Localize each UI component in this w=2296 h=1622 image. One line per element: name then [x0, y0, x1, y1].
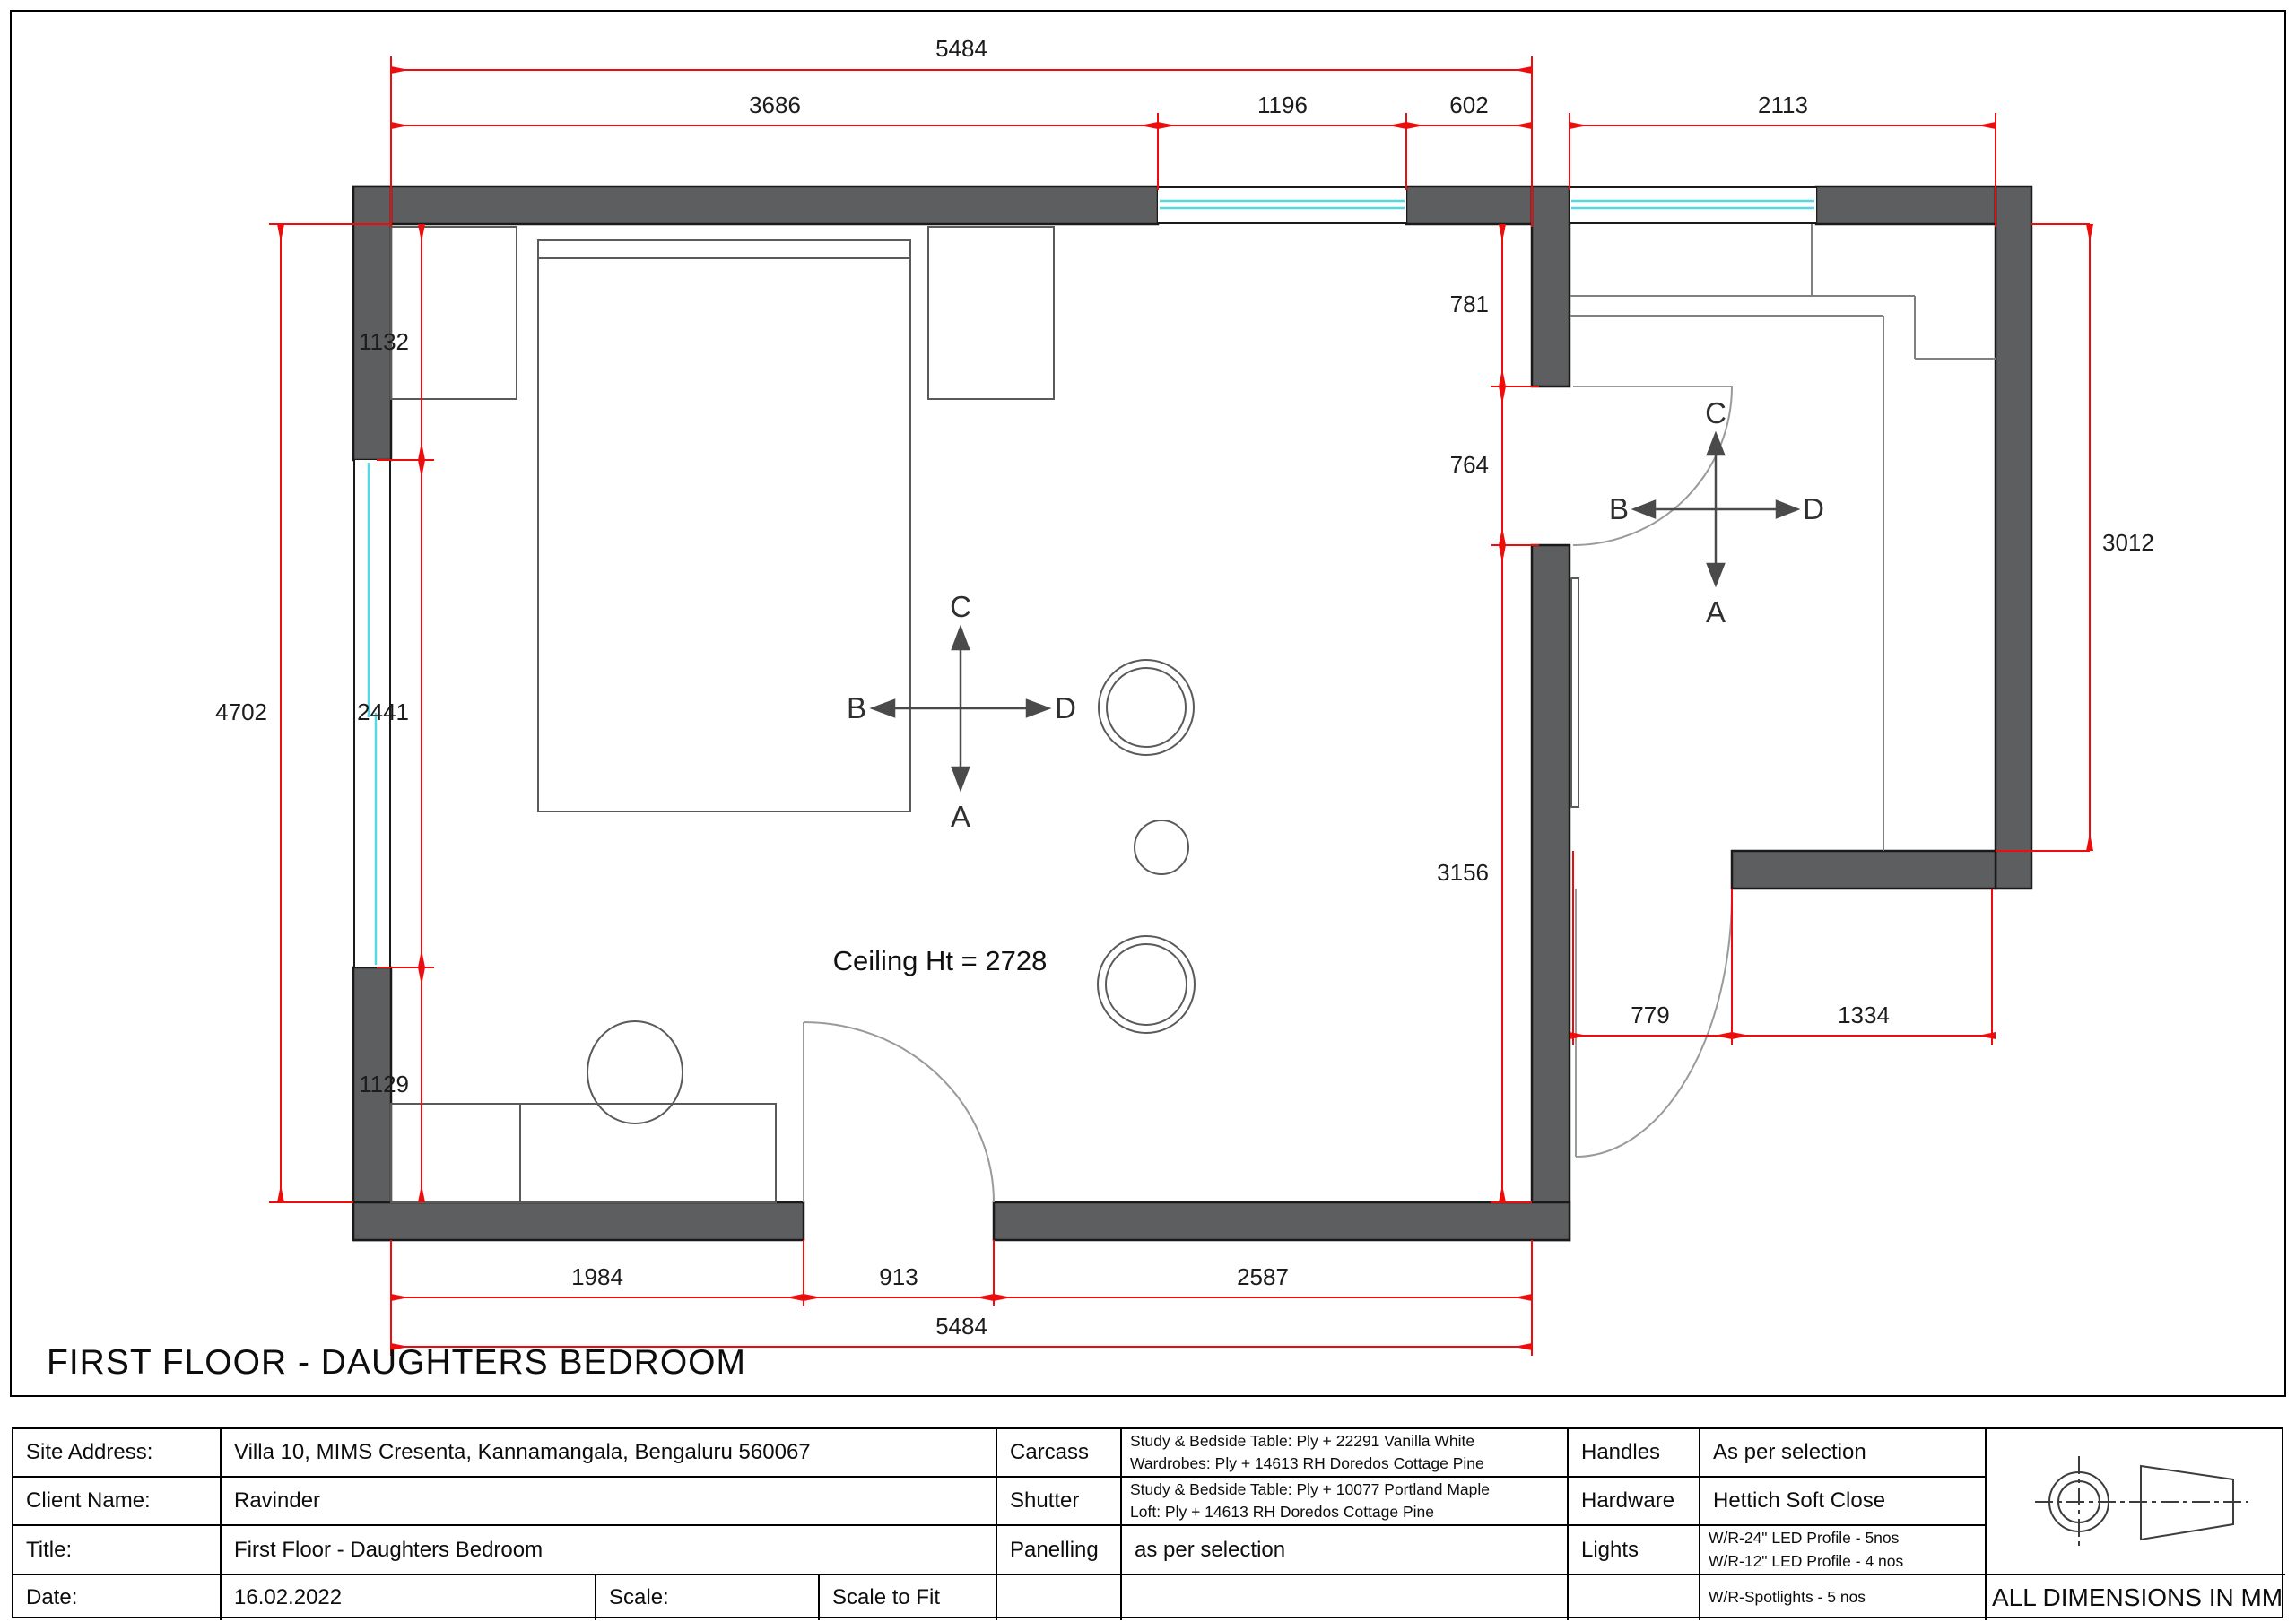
study-chair: [587, 1021, 683, 1123]
compass-closet: C A B D: [1609, 396, 1824, 629]
wall-left-lower: [353, 967, 391, 1240]
lights-label: Lights: [1569, 1526, 1700, 1575]
lights-value: W/R-24" LED Profile - 5nos W/R-12" LED P…: [1700, 1526, 1987, 1575]
window-top-closet: [1570, 186, 1816, 224]
compass-label-c: C: [950, 590, 971, 623]
wall-mirror: [1571, 578, 1578, 807]
compass-arrow-left-icon: [873, 700, 894, 716]
bedside-table-right: [928, 227, 1054, 399]
compass-label-c: C: [1705, 396, 1726, 429]
date-label: Date:: [13, 1575, 222, 1620]
dim-top-total: 5484: [935, 35, 987, 62]
dim-4702: 4702: [215, 698, 267, 725]
walls: [353, 186, 2031, 1240]
third-angle-projection-icon: [1987, 1429, 2285, 1574]
shutter-value: Study & Bedside Table: Ply + 10077 Portl…: [1122, 1478, 1569, 1526]
empty-cell: [997, 1575, 1122, 1620]
door-entry: [804, 1022, 994, 1202]
projection-symbol-cell: [1987, 1429, 2285, 1575]
doors: [804, 386, 1732, 1202]
compass-label-b: B: [1609, 492, 1629, 525]
client-value: Ravinder: [222, 1478, 997, 1526]
panelling-value: as per selection: [1122, 1526, 1569, 1575]
shutter-line2: Loft: Ply + 14613 RH Doredos Cottage Pin…: [1130, 1503, 1434, 1521]
site-address-value: Villa 10, MIMS Cresenta, Kannamangala, B…: [222, 1429, 997, 1478]
window-top-main: [1158, 186, 1406, 224]
dim-3156: 3156: [1437, 859, 1489, 886]
compass-label-a: A: [1706, 595, 1726, 629]
dim-913: 913: [879, 1263, 918, 1290]
wall-divider-lower: [1532, 545, 1570, 1240]
wall-bottom-left: [353, 1202, 804, 1240]
dim-781: 781: [1450, 291, 1489, 317]
compass-arrow-right-icon: [1027, 700, 1048, 716]
shutter-line1: Study & Bedside Table: Ply + 10077 Portl…: [1130, 1480, 1490, 1498]
panelling-label: Panelling: [997, 1526, 1122, 1575]
bedside-table-left: [391, 227, 517, 399]
scale-value: Scale to Fit: [820, 1575, 997, 1620]
lights-line1: W/R-24" LED Profile - 5nos: [1709, 1529, 1899, 1547]
study-table: [391, 1104, 776, 1202]
dim-2113: 2113: [1758, 91, 1808, 118]
dim-1984: 1984: [571, 1263, 623, 1290]
wall-left-upper: [353, 186, 391, 460]
carcass-line1: Study & Bedside Table: Ply + 22291 Vanil…: [1130, 1432, 1474, 1450]
all-dimensions-note: ALL DIMENSIONS IN MM: [1987, 1575, 2285, 1620]
spotlights-value: W/R-Spotlights - 5 nos: [1700, 1575, 1987, 1620]
wardrobe-outlines: [1570, 224, 1996, 851]
dim-3686: 3686: [749, 91, 801, 118]
furniture: [391, 227, 1578, 1202]
carcass-label: Carcass: [997, 1429, 1122, 1478]
carcass-line2: Wardrobes: Ply + 14613 RH Doredos Cottag…: [1130, 1454, 1484, 1472]
dim-2441: 2441: [357, 698, 409, 725]
compass-label-b: B: [847, 691, 866, 724]
title-label: Title:: [13, 1526, 222, 1575]
compass-arrow-up-icon: [952, 628, 969, 649]
dim-bottom-total: 5484: [935, 1313, 987, 1340]
pouf-top-outer: [1099, 660, 1194, 755]
site-address-label: Site Address:: [13, 1429, 222, 1478]
lights-line2: W/R-12" LED Profile - 4 nos: [1709, 1552, 1903, 1570]
wall-top-right: [1406, 186, 1532, 224]
dim-764: 764: [1450, 451, 1489, 478]
dim-1129: 1129: [359, 1071, 409, 1097]
shutter-label: Shutter: [997, 1478, 1122, 1526]
wall-right-outer: [1996, 186, 2031, 889]
wall-bottom-right: [994, 1202, 1570, 1240]
handles-value: As per selection: [1700, 1429, 1987, 1478]
title-value: First Floor - Daughters Bedroom: [222, 1526, 997, 1575]
bed: [538, 240, 910, 811]
compass-arrow-down-icon: [1708, 564, 1724, 585]
compass-arrow-right-icon: [1777, 501, 1797, 517]
compass-arrow-down-icon: [952, 768, 969, 789]
carcass-value: Study & Bedside Table: Ply + 22291 Vanil…: [1122, 1429, 1569, 1478]
empty-cell: [1122, 1575, 1569, 1620]
compass-label-a: A: [951, 800, 970, 833]
wall-top-left: [353, 186, 1158, 224]
dim-602: 602: [1449, 91, 1488, 118]
dim-1196: 1196: [1257, 91, 1308, 118]
title-block: Site Address: Villa 10, MIMS Cresenta, K…: [12, 1427, 2283, 1618]
compass-label-d: D: [1055, 691, 1076, 724]
stool-small: [1135, 820, 1188, 874]
pouf-top-inner: [1107, 668, 1186, 747]
date-value: 16.02.2022: [222, 1575, 596, 1620]
dim-1132: 1132: [359, 328, 409, 355]
ceiling-height-note: Ceiling Ht = 2728: [833, 945, 1048, 976]
hardware-value: Hettich Soft Close: [1700, 1478, 1987, 1526]
client-label: Client Name:: [13, 1478, 222, 1526]
hardware-label: Hardware: [1569, 1478, 1700, 1526]
wall-divider-upper: [1532, 186, 1570, 386]
compass-arrow-left-icon: [1634, 501, 1655, 517]
dimension-labels: 5484 3686 1196 602 2113 4702 1132 2441 1…: [215, 35, 2154, 1340]
pouf-bottom-inner: [1106, 944, 1187, 1025]
drawing-sheet: C A B D C A B D Ceiling Ht = 2728: [0, 0, 2296, 1622]
dim-3012: 3012: [2102, 529, 2154, 556]
wall-closet-top: [1816, 186, 1996, 224]
dimension-extension-lines: [269, 56, 2090, 1356]
pouf-bottom-outer: [1098, 936, 1195, 1033]
wall-closet-bottom: [1732, 851, 1996, 889]
floor-plan: C A B D C A B D Ceiling Ht = 2728: [0, 0, 2296, 1399]
handles-label: Handles: [1569, 1429, 1700, 1478]
drawing-title: FIRST FLOOR - DAUGHTERS BEDROOM: [47, 1343, 746, 1383]
dim-2587: 2587: [1237, 1263, 1289, 1290]
empty-cell: [1569, 1575, 1700, 1620]
compass-label-d: D: [1803, 492, 1824, 525]
dim-779: 779: [1631, 1002, 1669, 1028]
dim-1334: 1334: [1838, 1002, 1890, 1028]
compass-main: C A B D: [847, 590, 1076, 833]
windows: [353, 186, 1816, 967]
scale-label: Scale:: [596, 1575, 820, 1620]
